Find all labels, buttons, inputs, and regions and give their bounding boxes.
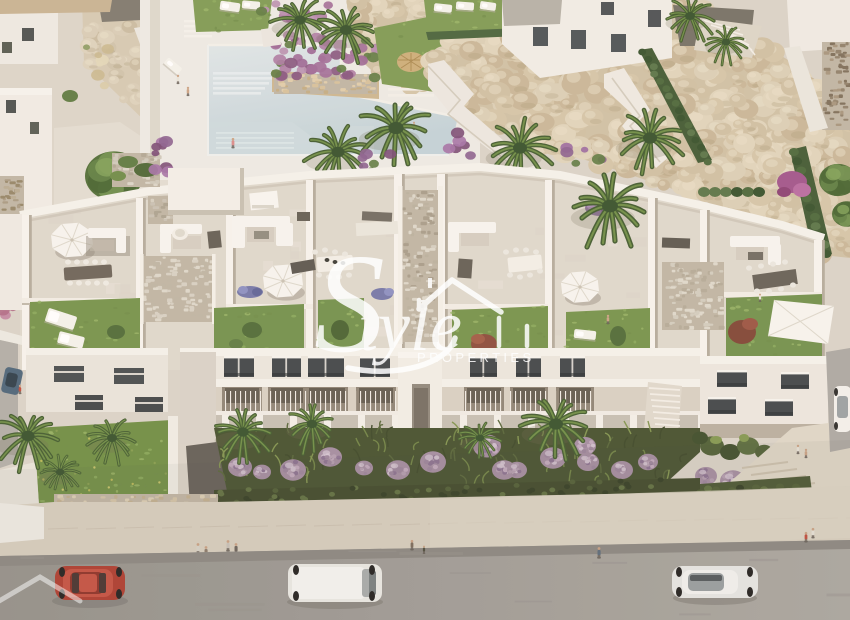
svg-text:PROPERTIES: PROPERTIES	[417, 350, 535, 365]
